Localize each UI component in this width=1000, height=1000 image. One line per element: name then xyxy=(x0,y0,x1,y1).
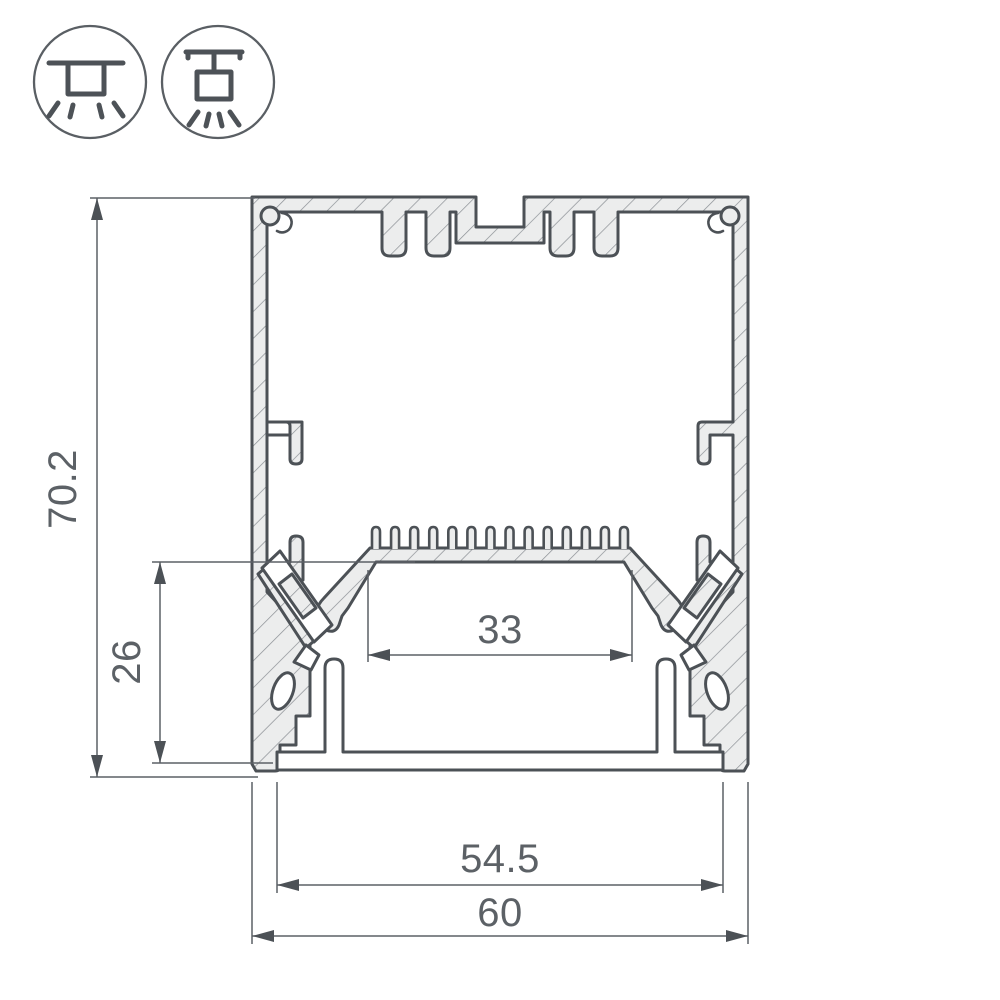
diffuser xyxy=(277,659,723,770)
dim-diffuser-width: 54.5 xyxy=(277,782,723,893)
heatsink-fin xyxy=(410,527,418,549)
heatsink-fin xyxy=(620,527,628,549)
heatsink-fin xyxy=(525,527,533,549)
arrow-left xyxy=(368,649,390,661)
technical-drawing: 70.2 26 33 54.5 60 xyxy=(0,0,1000,1000)
arrow-right xyxy=(701,879,723,891)
dim-overall-width-label: 60 xyxy=(477,891,523,935)
profile-cross-section xyxy=(252,197,748,771)
arrow-up xyxy=(91,198,103,220)
heatsink-fin xyxy=(601,527,609,549)
dim-led-shelf-width: 33 xyxy=(368,570,632,662)
lamp-body xyxy=(68,63,104,94)
dim-overall-height-lines xyxy=(90,198,258,777)
light-rays xyxy=(189,112,239,126)
heatsink-fin xyxy=(372,527,380,549)
heatsink-fin xyxy=(391,527,399,549)
arrow-left xyxy=(277,879,299,891)
heatsink-fin xyxy=(582,527,590,549)
dim-overall-height: 70.2 xyxy=(41,198,258,777)
mount-icons xyxy=(34,26,274,138)
heatsink-fin xyxy=(429,527,437,549)
pendant-mount-icon xyxy=(162,26,274,138)
dim-overall-height-label: 70.2 xyxy=(41,449,85,529)
heatsink-fin xyxy=(506,527,514,549)
heatsink-fin xyxy=(563,527,571,549)
surface-mount-icon xyxy=(34,26,146,138)
heatsink-fin xyxy=(486,527,494,549)
screw-boss-right xyxy=(721,207,739,225)
surface-mount-icon-circle xyxy=(34,26,146,138)
dim-led-shelf-width-label: 33 xyxy=(477,608,523,652)
dim-diffuser-width-label: 54.5 xyxy=(460,837,540,881)
lamp-body xyxy=(197,72,231,99)
screw-boss-left xyxy=(261,207,279,225)
arrow-right xyxy=(610,649,632,661)
arrow-down xyxy=(91,755,103,777)
arrow-right xyxy=(726,930,748,942)
arrow-down xyxy=(154,741,166,763)
arrow-left xyxy=(252,930,274,942)
heatsink-fin xyxy=(544,527,552,549)
arrow-up xyxy=(154,562,166,584)
heatsink-fins xyxy=(372,527,628,549)
pendant-mount-icon-circle xyxy=(162,26,274,138)
heatsink-fin xyxy=(467,527,475,549)
dim-inner-height-label: 26 xyxy=(105,639,149,685)
light-rays xyxy=(49,103,123,117)
heatsink-fin xyxy=(448,527,456,549)
